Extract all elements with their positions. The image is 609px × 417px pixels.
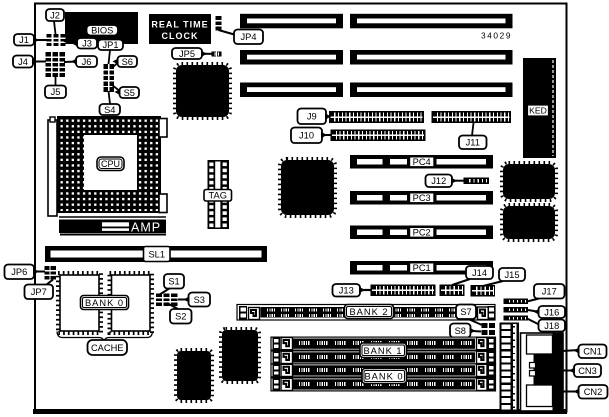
svg-text:S8: S8 (455, 326, 466, 336)
svg-text:S7: S7 (460, 307, 471, 317)
svg-text:J13: J13 (339, 286, 354, 296)
svg-text:CN1: CN1 (583, 347, 602, 357)
svg-text:J17: J17 (542, 287, 557, 297)
svg-text:J2: J2 (50, 10, 60, 20)
svg-text:J18: J18 (544, 321, 559, 331)
svg-text:J11: J11 (466, 138, 480, 148)
svg-text:CPU: CPU (101, 159, 120, 169)
svg-text:S1: S1 (168, 277, 179, 287)
svg-text:J10: J10 (299, 131, 314, 141)
svg-text:BIOS: BIOS (91, 26, 113, 36)
svg-text:PC2: PC2 (413, 228, 431, 238)
svg-text:J4: J4 (18, 57, 28, 67)
svg-text:JP6: JP6 (11, 267, 27, 277)
svg-text:J1: J1 (19, 35, 29, 45)
svg-text:PC3: PC3 (413, 193, 431, 203)
svg-text:AMP: AMP (131, 221, 161, 235)
svg-text:SL1: SL1 (148, 249, 165, 259)
svg-text:CN3: CN3 (578, 366, 597, 376)
svg-text:BANK 2: BANK 2 (349, 307, 388, 317)
svg-text:JP1: JP1 (102, 40, 118, 50)
svg-text:CN2: CN2 (584, 387, 603, 397)
svg-text:S3: S3 (194, 295, 205, 305)
svg-text:J14: J14 (472, 268, 487, 278)
svg-text:JP5: JP5 (179, 49, 195, 59)
svg-text:J12: J12 (431, 176, 446, 186)
svg-text:JP4: JP4 (240, 32, 256, 42)
svg-text:J6: J6 (82, 57, 92, 67)
svg-text:J9: J9 (307, 112, 317, 122)
svg-text:CACHE: CACHE (91, 343, 124, 353)
svg-text:J15: J15 (505, 270, 520, 280)
svg-text:J16: J16 (544, 307, 559, 317)
svg-text:34029: 34029 (481, 31, 512, 41)
svg-text:JP7: JP7 (31, 287, 47, 297)
svg-text:BANK 1: BANK 1 (363, 346, 402, 356)
svg-text:BANK 0: BANK 0 (85, 298, 124, 308)
svg-text:J5: J5 (51, 87, 61, 97)
svg-text:KED: KED (529, 106, 547, 116)
svg-text:BANK 0: BANK 0 (364, 372, 403, 382)
svg-text:PC1: PC1 (413, 263, 431, 273)
svg-text:S4: S4 (104, 105, 115, 115)
svg-text:PC4: PC4 (413, 157, 431, 167)
svg-text:TAG: TAG (209, 191, 227, 201)
svg-text:CLOCK: CLOCK (162, 31, 199, 41)
svg-text:J3: J3 (82, 39, 92, 49)
svg-text:REAL TIME: REAL TIME (151, 20, 208, 30)
svg-text:S2: S2 (175, 312, 186, 322)
svg-text:S6: S6 (122, 57, 133, 67)
svg-text:S5: S5 (124, 88, 135, 98)
